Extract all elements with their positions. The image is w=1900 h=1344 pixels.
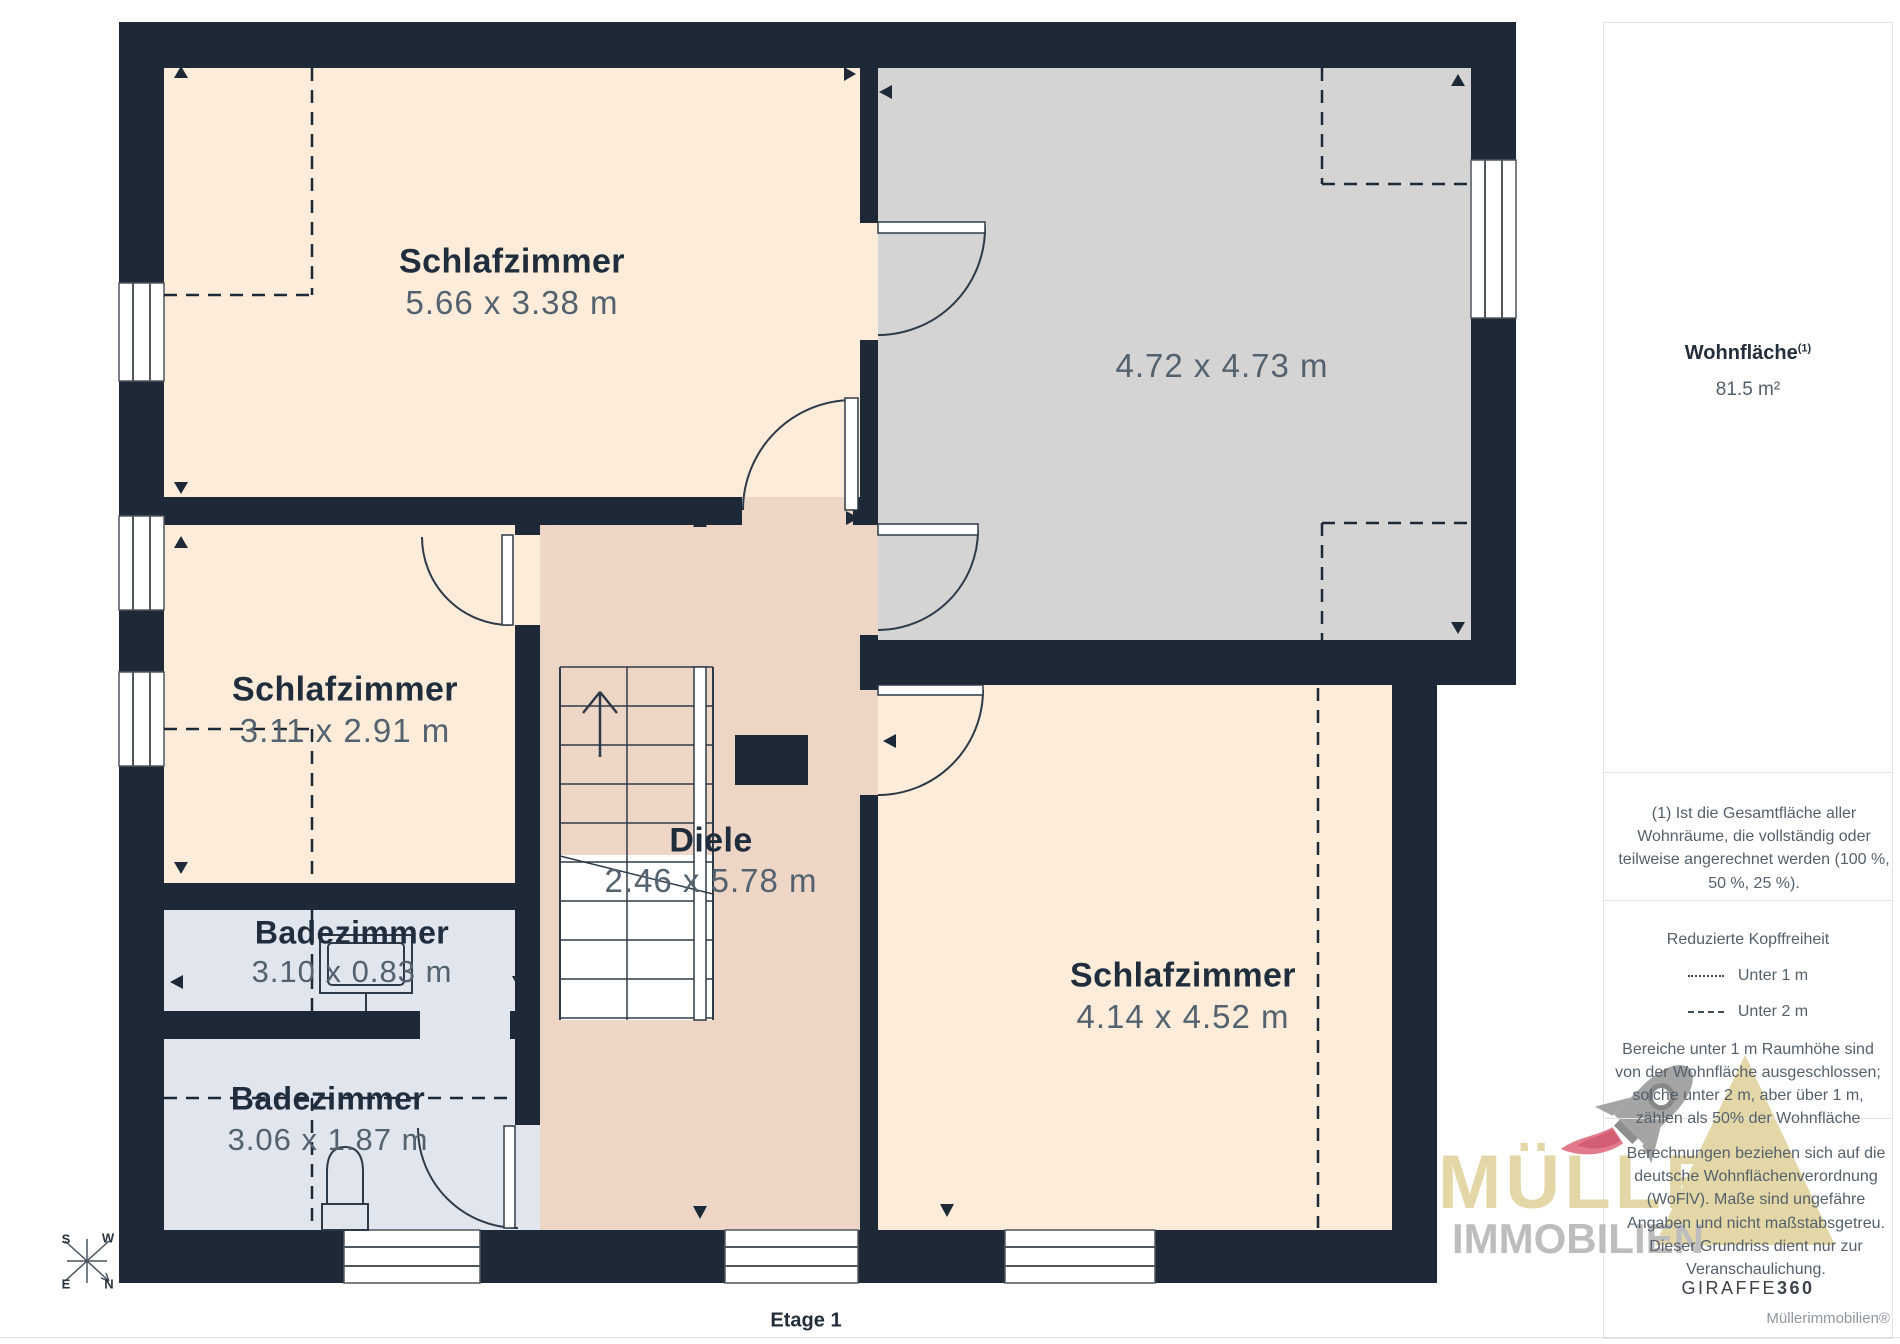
room-dims: 5.66 x 3.38 m	[406, 284, 619, 322]
compass-w: W	[102, 1231, 114, 1246]
room-label: Diele	[669, 822, 752, 861]
disclaimer-text: Berechnungen beziehen sich auf die deuts…	[1608, 1142, 1900, 1281]
room-dims: 3.10 x 0.83 m	[252, 954, 453, 990]
window	[119, 672, 164, 766]
window	[119, 516, 164, 610]
room-dims: 3.06 x 1.87 m	[228, 1122, 429, 1158]
living-area-label: Wohnfläche	[1685, 342, 1798, 364]
compass-star	[40, 1228, 140, 1308]
dashed-line-icon	[1688, 1011, 1724, 1013]
brand-name: GIRAFFE	[1681, 1278, 1777, 1298]
sidebar-divider	[1603, 900, 1893, 901]
room-label: Schlafzimmer	[1070, 957, 1296, 996]
living-area-section: Wohnfläche(1) 81.5 m²	[1608, 342, 1888, 401]
agency-credit: Müllerimmobilien®	[1766, 1310, 1890, 1327]
living-area-value: 81.5 m²	[1608, 379, 1888, 401]
legend-item-label: Unter 1 m	[1738, 964, 1808, 987]
room-label: Badezimmer	[231, 1081, 425, 1118]
room-dims: 4.72 x 4.73 m	[1116, 347, 1329, 385]
room-label: Schlafzimmer	[399, 243, 625, 282]
window	[1005, 1230, 1155, 1283]
legend-item-under-2m: Unter 2 m	[1608, 1000, 1888, 1023]
room-dims: 3.11 x 2.91 m	[240, 712, 451, 750]
chimney-block	[735, 735, 808, 785]
headroom-legend: Reduzierte Kopffreiheit Unter 1 m Unter …	[1608, 928, 1888, 1130]
room-dims: 4.14 x 4.52 m	[1077, 998, 1290, 1036]
dotted-line-icon	[1688, 975, 1724, 977]
floor-plan-page: { "floor_plan": { "floor_label": "Etage …	[0, 0, 1900, 1344]
sidebar-divider	[1603, 772, 1893, 773]
room-label: Badezimmer	[255, 915, 449, 952]
legend-item-under-1m: Unter 1 m	[1608, 964, 1888, 987]
room-label: Schlafzimmer	[232, 671, 458, 710]
window	[119, 283, 164, 381]
headroom-note: Bereiche unter 1 m Raumhöhe sind von der…	[1608, 1038, 1888, 1131]
footnote-text: (1) Ist die Gesamtfläche aller Wohnräume…	[1608, 802, 1900, 895]
window	[344, 1230, 480, 1283]
compass-s: S	[62, 1232, 71, 1247]
room-dims: 2.46 x 5.78 m	[605, 862, 818, 900]
legend-item-label: Unter 2 m	[1738, 1000, 1808, 1023]
window	[1471, 160, 1516, 318]
compass-rose: S W E N	[40, 1228, 140, 1308]
living-area-title: Wohnfläche(1)	[1608, 342, 1888, 365]
brand-suffix: 360	[1777, 1278, 1815, 1298]
window	[725, 1230, 858, 1283]
floor-label: Etage 1	[770, 1310, 841, 1333]
giraffe360-brand: GIRAFFE360	[1608, 1278, 1888, 1299]
living-area-footnote-marker: (1)	[1798, 342, 1811, 354]
compass-e: E	[62, 1277, 71, 1292]
headroom-legend-title: Reduzierte Kopffreiheit	[1608, 928, 1888, 951]
compass-n: N	[104, 1277, 113, 1292]
